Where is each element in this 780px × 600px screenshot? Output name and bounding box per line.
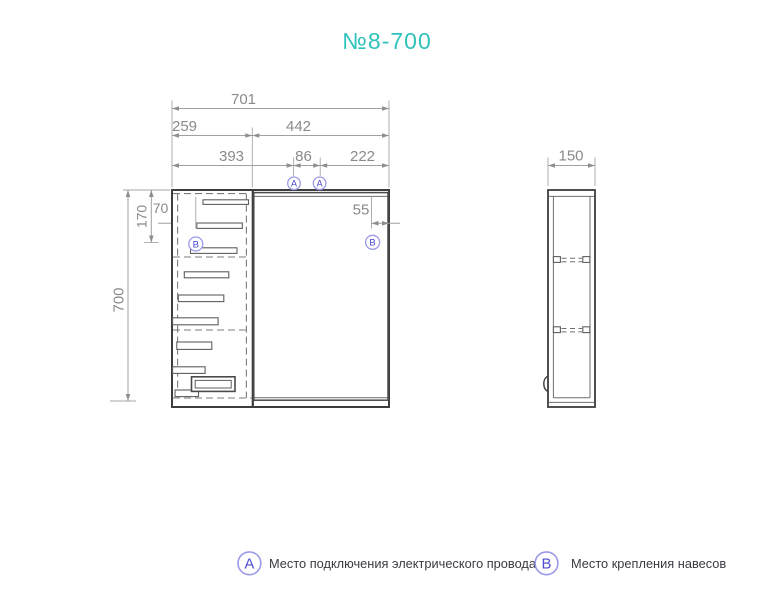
dim-hinge-left: 70 [153, 200, 169, 216]
legend-item-hangers: B Место крепления навесов [535, 552, 726, 575]
legend-b-label: Место крепления навесов [571, 556, 726, 571]
legend-a-label: Место подключения электрического провода [269, 556, 537, 571]
shelf-bar [203, 200, 249, 205]
dim-hinge-right: 55 [353, 202, 370, 219]
marker-a-letter: A [317, 178, 323, 188]
arrow-tick [588, 163, 595, 168]
arrow-tick [382, 133, 389, 138]
drawing-page: №8-700 701 259 442 393 86 222 [0, 0, 780, 600]
shelf-bar [173, 318, 219, 325]
legend-b-letter: B [541, 556, 551, 573]
arrow-tick [172, 163, 179, 168]
arrow-tick [126, 394, 131, 401]
handle-box [192, 377, 236, 392]
dim-right-width: 442 [286, 118, 311, 135]
legend: A Место подключения электрического прово… [238, 552, 726, 575]
dim-depth: 150 [558, 148, 583, 165]
shelf-pin [553, 257, 560, 263]
marker-b-letter: B [369, 238, 375, 249]
shelf-bar [173, 367, 206, 374]
arrow-tick [382, 106, 389, 111]
shelf-pin [583, 327, 590, 333]
arrow-tick [172, 106, 179, 111]
arrow-tick [126, 190, 131, 197]
side-outline [548, 190, 595, 407]
side-view: 150 [544, 148, 595, 408]
arrow-tick [382, 163, 389, 168]
legend-a-letter: A [244, 556, 254, 573]
dim-height: 700 [111, 287, 128, 312]
marker-a-letter: A [291, 178, 297, 188]
arrow-tick [149, 190, 154, 197]
dim-left-width: 259 [172, 118, 197, 135]
front-view: 55 A A B B [172, 177, 400, 407]
arrow-tick [149, 236, 154, 243]
shelf-bar [177, 342, 212, 349]
dim-a-right: 222 [350, 148, 375, 165]
legend-item-electrical: A Место подключения электрического прово… [238, 552, 537, 575]
page-title: №8-700 [342, 28, 432, 54]
dim-a-gap: 86 [295, 148, 312, 165]
shelf-bar [197, 223, 243, 228]
technical-drawing-canvas: №8-700 701 259 442 393 86 222 [0, 0, 780, 600]
shelf-pin [583, 257, 590, 263]
arrow-tick [548, 163, 555, 168]
dim-total-width: 701 [231, 91, 256, 108]
shelf-pin [553, 327, 560, 333]
shelf-bar [178, 295, 224, 302]
dim-hinge-top: 170 [134, 205, 150, 229]
dim-a-left: 393 [219, 148, 244, 165]
marker-b-letter: B [193, 239, 199, 250]
front-top-dimensions: 701 259 442 393 86 222 [172, 91, 389, 188]
shelf-bar [184, 272, 229, 278]
